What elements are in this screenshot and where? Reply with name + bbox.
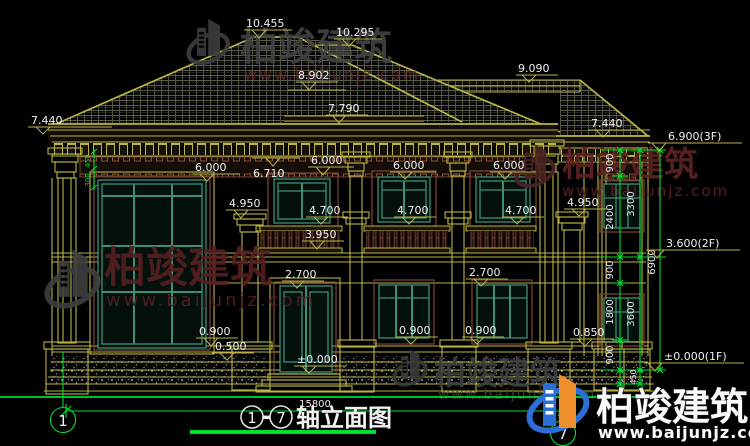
balcony-railing-3	[466, 226, 536, 253]
svg-text:2.700: 2.700	[285, 268, 317, 281]
elevation-label-annex-ridge: 9.090	[516, 62, 558, 82]
svg-text:4.700: 4.700	[505, 204, 537, 217]
dim-seg: 900	[605, 345, 616, 364]
window-2f-1	[268, 173, 338, 227]
watermark-brand: 柏竣建筑	[104, 243, 272, 292]
elevation-label-capital-left: 4.950	[226, 197, 268, 218]
watermark-brand: 柏竣建筑	[562, 145, 698, 185]
svg-text:±0.000(1F): ±0.000(1F)	[664, 350, 727, 363]
svg-text:4.700: 4.700	[397, 204, 429, 217]
svg-text:0.900: 0.900	[199, 325, 231, 338]
dim-eave-a: 450	[84, 154, 92, 167]
title-axis-end: 7	[276, 409, 286, 427]
svg-text:6.000: 6.000	[493, 159, 525, 172]
svg-text:4.950: 4.950	[229, 197, 261, 210]
svg-text:6.710: 6.710	[253, 167, 285, 180]
svg-text:8.902: 8.902	[298, 69, 330, 82]
title-underline	[190, 430, 376, 434]
svg-text:7.440: 7.440	[31, 114, 63, 127]
title-text: 轴立面图	[296, 404, 392, 432]
svg-text:6.000: 6.000	[311, 154, 343, 167]
watermark-url: www.baijunjz.com	[106, 290, 316, 311]
porch-column-left	[48, 148, 82, 343]
svg-text:7.440: 7.440	[591, 117, 623, 130]
eave-cornice-main	[48, 124, 558, 177]
svg-text:0.900: 0.900	[399, 324, 431, 337]
svg-text:9.090: 9.090	[518, 62, 550, 75]
cad-elevation-canvas: 柏竣建筑 www.baijunjz.com 柏竣建筑 www.baijunjz.…	[0, 0, 750, 446]
svg-text:6.900(3F): 6.900(3F)	[668, 130, 721, 143]
pilaster-mid-left	[342, 152, 370, 340]
pilaster-mid-right	[444, 152, 472, 340]
short-pilaster-right	[556, 212, 588, 342]
axis-number: 1	[58, 412, 68, 430]
svg-text:6.000: 6.000	[393, 159, 425, 172]
watermark-url: www.baijunjz.com	[244, 65, 420, 84]
svg-text:0.900: 0.900	[465, 324, 497, 337]
dim-eave-b: 300	[84, 173, 92, 186]
drawing-title: 1 - 7 轴立面图	[190, 402, 392, 434]
dentil-row	[52, 143, 556, 155]
balcony-railing-2	[364, 226, 450, 253]
elevation-label-sill1f-2: 0.900	[396, 324, 438, 344]
dim-sub: 3300	[626, 191, 637, 216]
dim-seg: 900	[605, 153, 616, 172]
dim-seg: 900	[605, 260, 616, 279]
svg-text:4.700: 4.700	[309, 204, 341, 217]
svg-text:4.950: 4.950	[567, 196, 599, 209]
svg-text:0.850: 0.850	[573, 326, 605, 339]
dim-seg: 1800	[605, 299, 616, 324]
svg-text:10.295: 10.295	[336, 26, 375, 39]
brand-url: www.baijunjz.com	[598, 423, 750, 442]
svg-text:±0.000: ±0.000	[297, 353, 338, 366]
elevation-drawing: 柏竣建筑 www.baijunjz.com 柏竣建筑 www.baijunjz.…	[0, 0, 750, 446]
svg-text:10.455: 10.455	[246, 17, 285, 30]
dim-seg: 2400	[605, 204, 616, 229]
svg-text:0.500: 0.500	[215, 340, 247, 353]
title-axis-start: 1	[247, 409, 257, 427]
dim-seg: 450	[629, 369, 638, 384]
svg-text:3.950: 3.950	[305, 228, 337, 241]
dim-sub: 3600	[626, 301, 637, 326]
svg-text:6.000: 6.000	[195, 161, 227, 174]
svg-text:7.790: 7.790	[328, 102, 360, 115]
svg-text:3.600(2F): 3.600(2F)	[666, 237, 719, 250]
elevation-label-floor1: ±0.000(1F)	[644, 350, 744, 371]
svg-text:2.700: 2.700	[469, 266, 501, 279]
